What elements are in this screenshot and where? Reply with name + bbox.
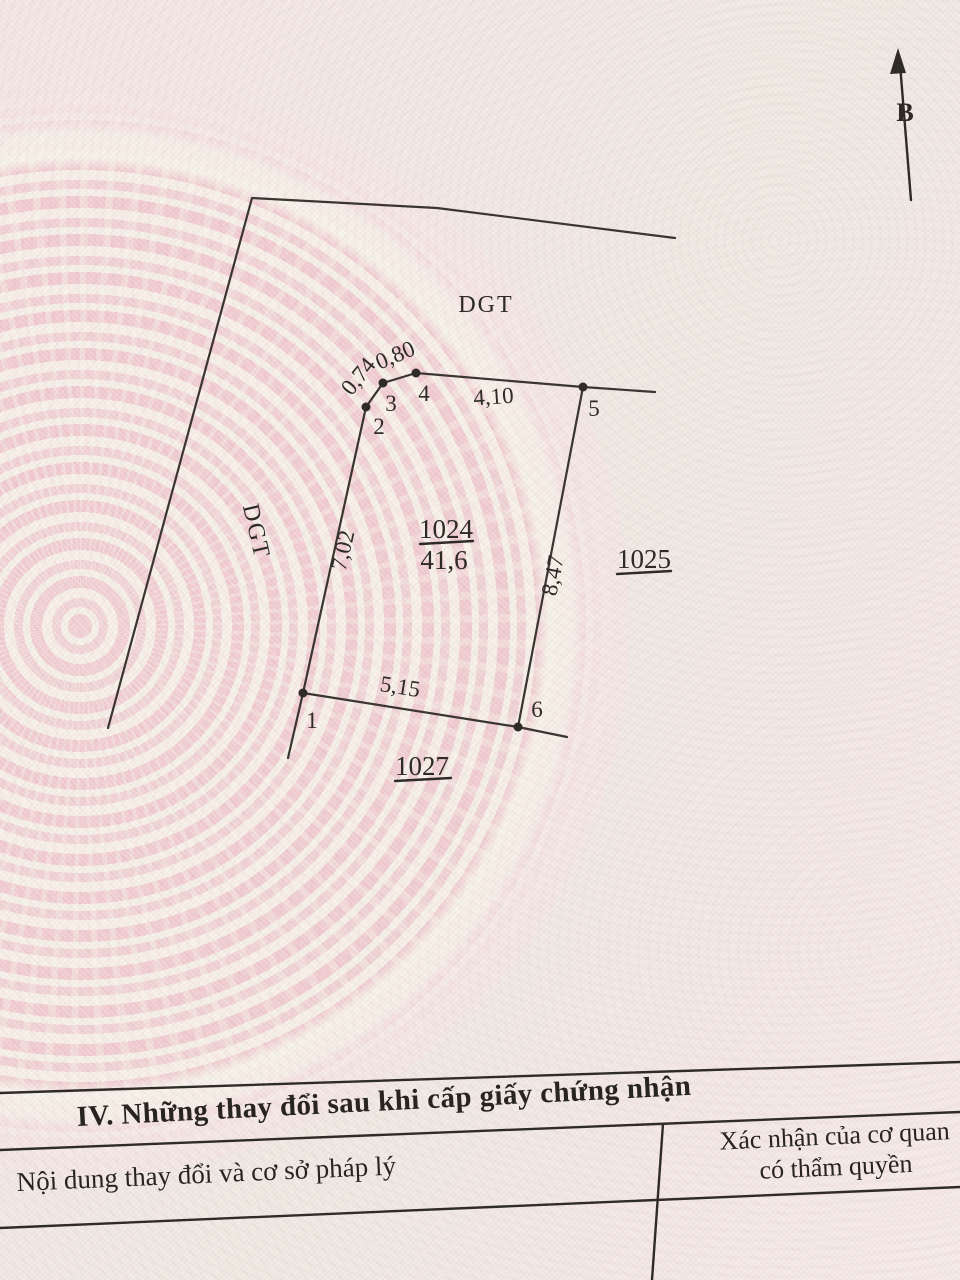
document-photo: 1 2 3 4 5 6 7,02 0,74 0,80 4,10 8,47 5,1… — [0, 0, 960, 1280]
north-arrow-head — [890, 48, 906, 74]
road-label-top: DGT — [458, 292, 513, 318]
table-column-divider — [652, 1124, 663, 1280]
vertex-dot-3 — [379, 379, 388, 388]
vertex-dot-2 — [362, 403, 371, 412]
north-arrow: B — [890, 48, 914, 200]
extension-line-v6 — [518, 727, 567, 737]
vertex-dot-1 — [299, 689, 308, 698]
edge-length-6-1: 5,15 — [378, 671, 422, 702]
table-subheader-rule — [0, 1187, 960, 1228]
parcel-area: 41,6 — [420, 545, 467, 575]
road-boundary-line — [108, 198, 675, 728]
neighbor-parcel-right: 1025 — [617, 544, 671, 574]
vertex-label-5: 5 — [588, 396, 600, 421]
edge-length-3-4: 0,80 — [372, 336, 419, 375]
vertex-dot-4 — [412, 369, 421, 378]
edge-length-4-5: 4,10 — [473, 383, 515, 411]
road-label-left: DGT — [237, 502, 275, 562]
vertex-dot-5 — [579, 383, 588, 392]
vertex-label-2: 2 — [373, 414, 385, 439]
neighbor-parcel-bottom: 1027 — [395, 751, 449, 781]
extension-line-v1 — [288, 693, 303, 758]
vertex-label-3: 3 — [385, 391, 397, 416]
vertex-label-6: 6 — [531, 697, 543, 722]
north-label: B — [896, 98, 913, 127]
edge-length-5-6: 8,47 — [537, 553, 569, 597]
vertex-dot-6 — [514, 723, 523, 732]
column-header-confirmation: Xác nhận của cơ quan có thẩm quyền — [688, 1114, 960, 1189]
north-arrow-shaft — [900, 64, 911, 200]
vertex-label-4: 4 — [418, 381, 430, 406]
edge-length-1-2: 7,02 — [326, 528, 359, 573]
extension-line-v5 — [583, 387, 655, 392]
parcel-id: 1024 — [419, 514, 474, 544]
vertex-label-1: 1 — [306, 708, 318, 733]
